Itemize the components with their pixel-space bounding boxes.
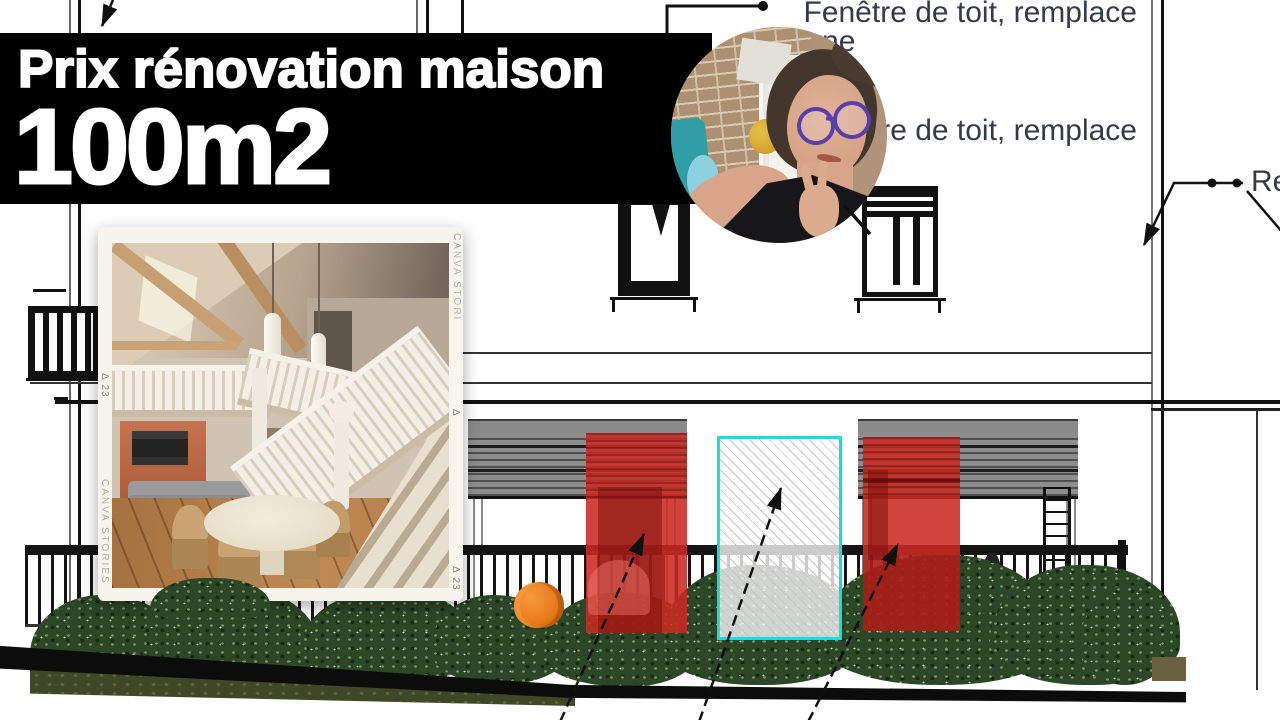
title-banner: Prix rénovation maison 100m2 bbox=[0, 33, 712, 204]
newel-ball bbox=[329, 401, 354, 423]
wall-edge-right-inner bbox=[1161, 0, 1164, 657]
wall-edge-right-outer bbox=[1151, 0, 1153, 657]
dining-chair bbox=[172, 505, 208, 569]
hand-peace-sign bbox=[799, 185, 839, 237]
pendant-cord bbox=[318, 243, 320, 338]
window-b-mullion-1 bbox=[893, 217, 900, 285]
outline-far-right bbox=[1256, 408, 1258, 690]
leader-dot bbox=[1208, 179, 1217, 188]
highlight-cyan-hatched bbox=[717, 436, 842, 640]
register-mark-right-mid: Δ bbox=[450, 409, 461, 417]
window-b-sill bbox=[854, 298, 946, 301]
beam bbox=[112, 341, 237, 350]
window-left-sill bbox=[26, 378, 102, 381]
interior-polaroid-photo: Δ 23 CANVA STORIES CANVA STORI Δ Δ 23 bbox=[98, 227, 463, 601]
canva-watermark-right: CANVA STORI bbox=[451, 233, 462, 321]
window-b-tick-l bbox=[857, 301, 860, 313]
red-right-divider bbox=[863, 478, 960, 483]
annotation-roof-window-1: Fenêtre de toit, remplace bbox=[803, 0, 1137, 30]
leader-dot bbox=[758, 1, 768, 11]
highlight-red-right bbox=[863, 437, 960, 631]
thumbnail-canvas: Δ 23 CANVA STORIES CANVA STORI Δ Δ 23 Pr… bbox=[0, 0, 1280, 720]
tv-panel bbox=[132, 431, 188, 465]
window-b-tick-r bbox=[938, 301, 941, 313]
sill-dash-left bbox=[33, 289, 66, 292]
wall-base-block bbox=[1152, 657, 1186, 681]
canva-watermark-left: CANVA STORIES bbox=[99, 479, 110, 585]
banner-subtitle: 100m2 bbox=[14, 87, 329, 208]
presenter-avatar bbox=[671, 27, 887, 243]
newel-post bbox=[334, 415, 349, 510]
roof-line-a bbox=[416, 0, 418, 36]
window-b-mullion-2 bbox=[913, 217, 920, 285]
window-left-barred bbox=[28, 306, 100, 378]
window-left-dash bbox=[54, 397, 68, 400]
register-mark-left: Δ 23 bbox=[99, 373, 110, 398]
roof-line-b bbox=[426, 0, 429, 36]
arrow-top-left bbox=[102, 0, 113, 26]
roof-line-c bbox=[461, 0, 464, 36]
red-left-table-glow bbox=[588, 560, 650, 615]
pendant-cord bbox=[272, 243, 274, 318]
red-right-bottom bbox=[863, 555, 960, 631]
window-a-tick-l bbox=[612, 300, 615, 312]
orange-pot bbox=[514, 582, 564, 628]
highlight-red-left bbox=[586, 433, 687, 633]
register-mark-right-bot: Δ 23 bbox=[450, 566, 461, 591]
leader-remplace bbox=[1144, 183, 1243, 245]
red-right-frame bbox=[868, 470, 888, 560]
window-a-tick-r bbox=[693, 300, 696, 312]
window-a-sill bbox=[610, 297, 698, 300]
leader-dot bbox=[1233, 179, 1242, 188]
interior-render bbox=[112, 243, 449, 588]
arrowhead-window-a bbox=[652, 204, 670, 236]
annotation-remplace-right: Remplace bbox=[1251, 165, 1280, 199]
floor-line-3b bbox=[1151, 408, 1280, 411]
dining-table-top bbox=[204, 495, 340, 551]
window-a-bottom bbox=[618, 281, 690, 296]
